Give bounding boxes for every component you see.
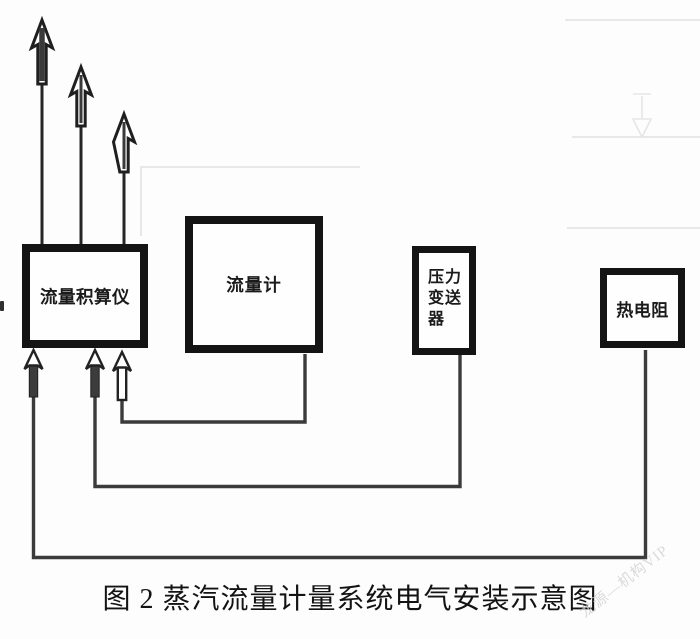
ghost-bleedthrough-lines [141,20,700,236]
input-up-arrow-icon-flowmeter [113,352,131,400]
totalizer-input-arrows [25,350,132,400]
wire-pressure-to-totalizer [95,354,460,487]
scan-smudge [0,301,4,311]
input-up-arrow-icon-rtd [25,350,43,397]
output-up-arrow-icon-2 [71,67,92,250]
input-up-arrow-icon-pressure [86,350,104,397]
pressure-transmitter-box: 压力 变送 器 [412,246,476,355]
flow-totalizer-label: 流量积算仪 [40,284,130,309]
output-up-arrow-icon-1 [32,20,53,250]
pressure-transmitter-label: 压力 变送 器 [428,267,462,330]
wire-flowmeter-to-totalizer [122,354,305,422]
rtd-label: 热电阻 [616,296,669,321]
ghost-down-arrow-icon [633,94,651,137]
flowmeter-box: 流量计 [185,216,323,353]
flowmeter-label: 流量计 [226,272,282,297]
totalizer-output-arrows [32,20,135,250]
output-up-arrow-icon-3 [114,114,135,250]
figure-canvas: 流量积算仪 流量计 压力 变送 器 热电阻 图 2 蒸汽流量计量系统电气安装示意… [0,0,700,639]
rtd-box: 热电阻 [600,268,685,348]
flow-totalizer-box: 流量积算仪 [22,244,148,348]
